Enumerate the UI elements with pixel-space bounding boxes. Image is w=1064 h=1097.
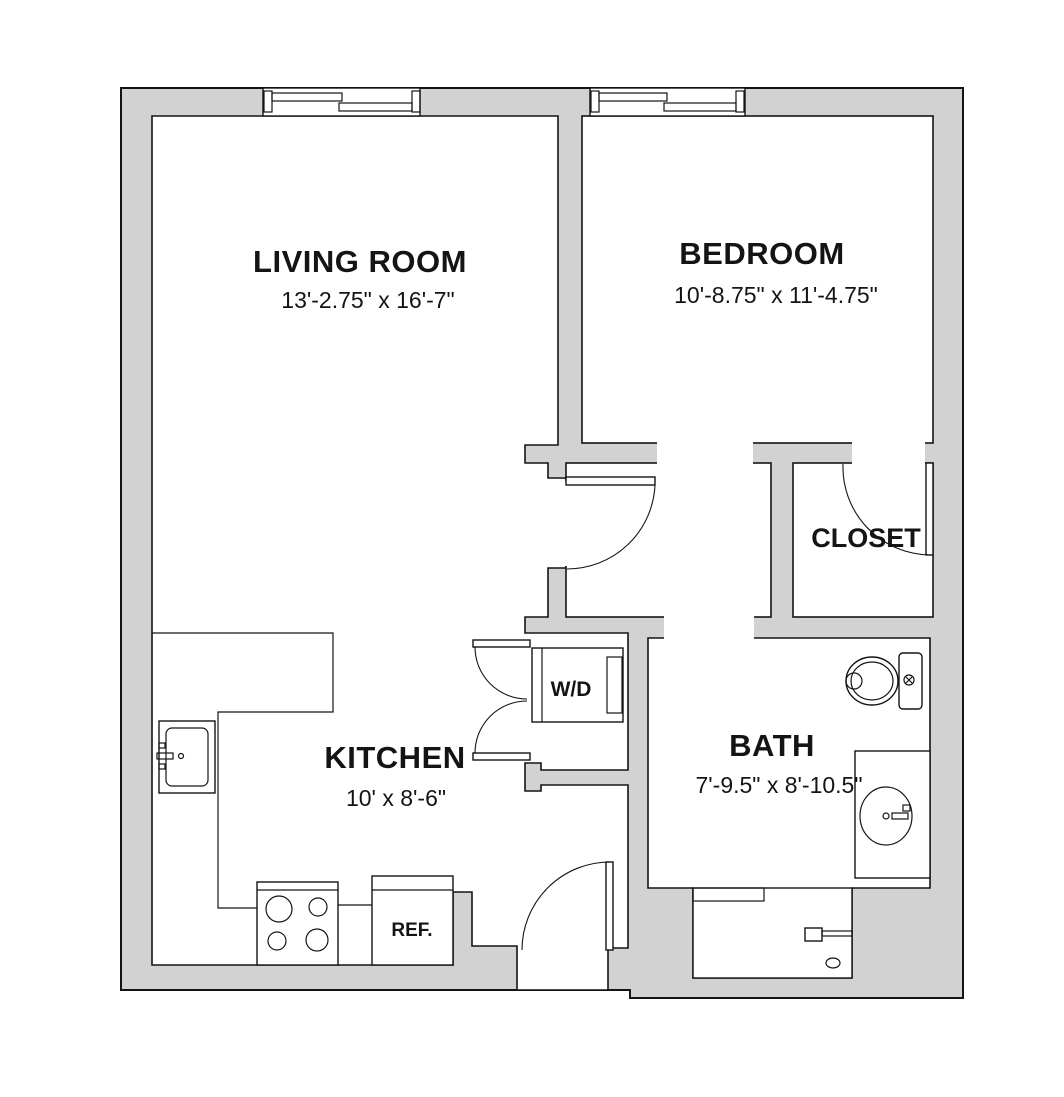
vanity-sink [855,751,930,878]
living-room-window [263,88,420,116]
bedroom-dimensions: 10'-8.75" x 11'-4.75" [674,282,878,308]
floor-plan-page: REF. W/D LIVING ROOM 13'-2.75" x 16'-7" … [0,0,1064,1097]
opening-hall-to-bath [664,613,754,641]
bedroom-window [590,88,745,116]
bath-label: BATH [729,728,815,763]
kitchen-label: KITCHEN [324,740,465,775]
bedroom-label: BEDROOM [679,236,844,271]
toilet [846,653,922,709]
refrigerator-label: REF. [391,920,432,941]
room-bedroom-floor [582,116,933,443]
bathtub [693,888,852,978]
opening-hall-to-bedroom [657,441,753,465]
washer-dryer: W/D [532,648,623,722]
living-room-dimensions: 13'-2.75" x 16'-7" [281,287,454,313]
opening-bedroom-to-closet [852,441,925,465]
living-room-label: LIVING ROOM [253,244,467,279]
floor-plan-drawing: REF. W/D LIVING ROOM 13'-2.75" x 16'-7" … [0,0,1064,1097]
closet-label: CLOSET [811,523,921,553]
range-stove [257,882,338,965]
bath-dimensions: 7'-9.5" x 8'-10.5" [695,772,862,798]
kitchen-dimensions: 10' x 8'-6" [346,785,446,811]
room-hall-floor [566,463,771,617]
refrigerator: REF. [372,876,453,965]
kitchen-sink [157,721,215,793]
opening-living-to-hall [559,481,573,566]
washer-dryer-label: W/D [551,678,592,701]
